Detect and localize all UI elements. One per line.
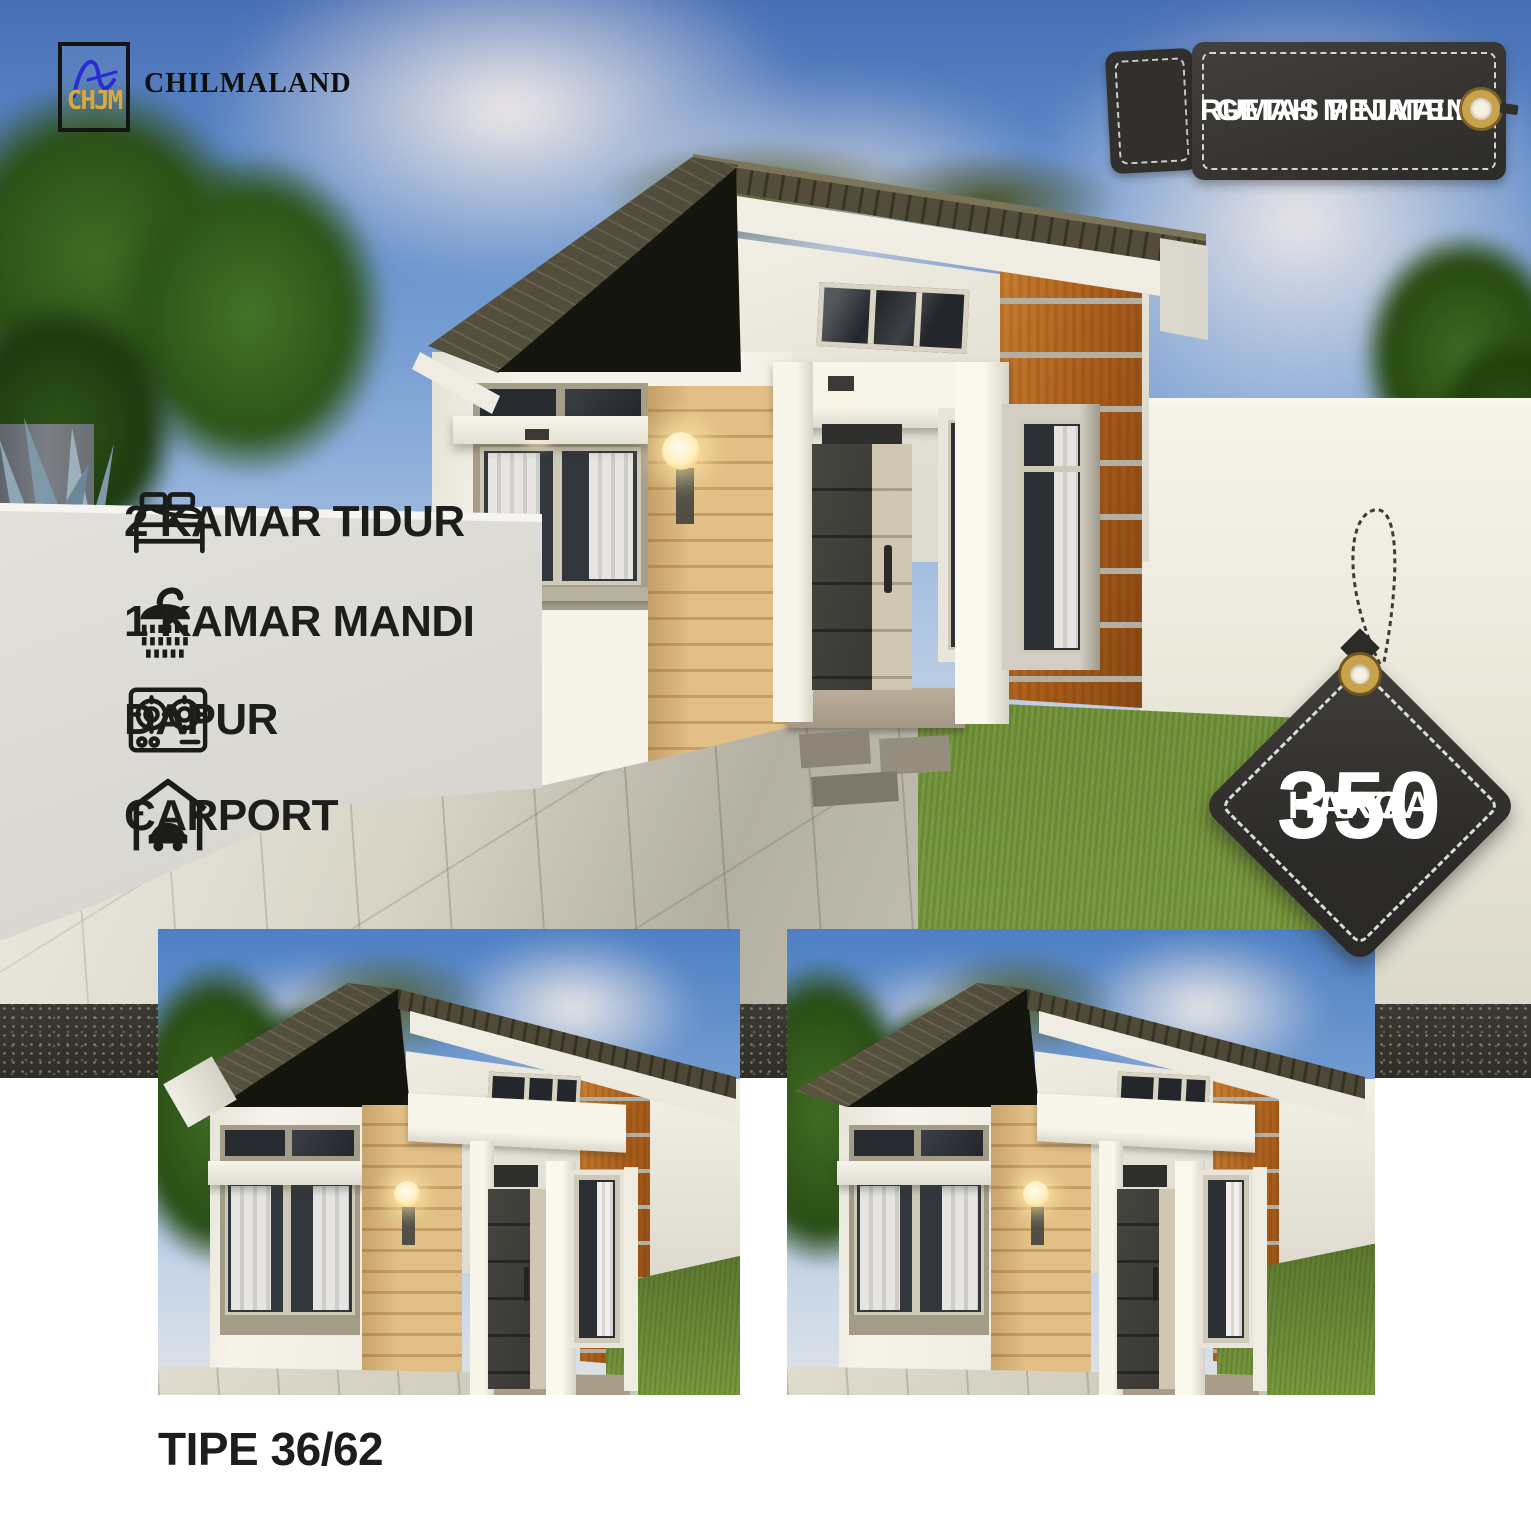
portico-column bbox=[1175, 1161, 1205, 1395]
window-mullion bbox=[1020, 466, 1084, 472]
window-mullion bbox=[283, 1181, 291, 1315]
stepping-stone bbox=[799, 730, 871, 769]
stepping-stone bbox=[879, 735, 951, 775]
price-unit: JUTA bbox=[1310, 785, 1410, 828]
door-side-panel bbox=[872, 444, 912, 690]
transom-pane bbox=[292, 1130, 354, 1156]
logo-monogram-letters: CHJM bbox=[64, 86, 124, 116]
feature-label: DAPUR bbox=[124, 695, 278, 745]
location-tag: RUMAH MINIMALIS GETAS PEJATEN bbox=[1106, 40, 1510, 184]
door-transom bbox=[822, 424, 902, 444]
downlight bbox=[525, 429, 549, 440]
grommet-icon bbox=[1462, 90, 1500, 128]
door-transom bbox=[1123, 1165, 1167, 1187]
curtain bbox=[589, 453, 633, 579]
tall-window bbox=[1203, 1175, 1249, 1343]
type-label: TIPE 36/62 bbox=[158, 1422, 383, 1476]
curtain bbox=[231, 1186, 271, 1310]
feature-label: 1 KAMAR MANDI bbox=[124, 597, 474, 647]
wall-lamp-bracket bbox=[1031, 1207, 1044, 1245]
tall-window bbox=[574, 1175, 620, 1343]
window-frame-edge bbox=[1253, 1167, 1267, 1391]
curtain bbox=[597, 1182, 613, 1336]
feature-label: CARPORT bbox=[124, 791, 338, 841]
inset-photo-left bbox=[158, 929, 740, 1395]
window-glass bbox=[1020, 420, 1084, 654]
wall-lamp bbox=[394, 1181, 420, 1207]
door-handle bbox=[884, 545, 892, 593]
transom-pane bbox=[854, 1130, 914, 1156]
inset-photo-right bbox=[787, 929, 1375, 1395]
wood-siding bbox=[362, 1105, 462, 1395]
curtain bbox=[313, 1186, 349, 1310]
door-handle bbox=[1153, 1267, 1158, 1301]
curtain bbox=[1054, 426, 1078, 648]
curtain bbox=[860, 1186, 900, 1310]
transom-pane bbox=[921, 1130, 983, 1156]
clerestory-window bbox=[816, 282, 969, 354]
wall-lamp bbox=[1023, 1181, 1049, 1207]
curtain bbox=[942, 1186, 978, 1310]
entry-platform bbox=[787, 688, 965, 728]
brand-logo: CHJM CHILMALAND bbox=[50, 38, 350, 142]
window-frame-edge bbox=[624, 1167, 638, 1391]
door-handle bbox=[524, 1267, 529, 1301]
front-door bbox=[812, 444, 874, 690]
portico-column bbox=[546, 1161, 576, 1395]
stepping-stone bbox=[811, 771, 899, 807]
wall-lamp-bracket bbox=[402, 1207, 415, 1245]
glass-reflection bbox=[822, 287, 965, 348]
porch-downlight bbox=[828, 376, 854, 391]
price-tag-text: HARGA 350 JUTA bbox=[1232, 686, 1488, 926]
wall-lamp-bracket bbox=[676, 468, 694, 524]
curtain bbox=[1226, 1182, 1242, 1336]
brand-name: CHILMALAND bbox=[144, 68, 352, 100]
tag-text: RUMAH MINIMALIS GETAS PEJATEN bbox=[1202, 42, 1482, 180]
transom-pane bbox=[225, 1130, 285, 1156]
portico-column bbox=[773, 362, 813, 722]
tag-tab bbox=[1105, 48, 1199, 174]
left-window bbox=[220, 1125, 360, 1335]
window-mullion bbox=[553, 447, 562, 585]
wood-siding bbox=[991, 1105, 1091, 1395]
portico-column bbox=[955, 362, 1009, 724]
wall-lamp bbox=[662, 432, 700, 470]
window-canopy bbox=[837, 1161, 999, 1185]
window-canopy bbox=[208, 1161, 370, 1185]
tag-line-2: GETAS PEJATEN bbox=[1216, 94, 1468, 128]
window-mullion bbox=[912, 1181, 920, 1315]
poster-canvas: 2 KAMAR TIDUR 1 KAMAR MANDI bbox=[0, 0, 1531, 1531]
feature-label: 2 KAMAR TIDUR bbox=[124, 497, 465, 547]
tall-window bbox=[1002, 404, 1100, 670]
logo-frame: CHJM bbox=[58, 42, 130, 132]
left-window bbox=[849, 1125, 989, 1335]
window-canopy bbox=[453, 416, 653, 444]
door-transom bbox=[494, 1165, 538, 1187]
